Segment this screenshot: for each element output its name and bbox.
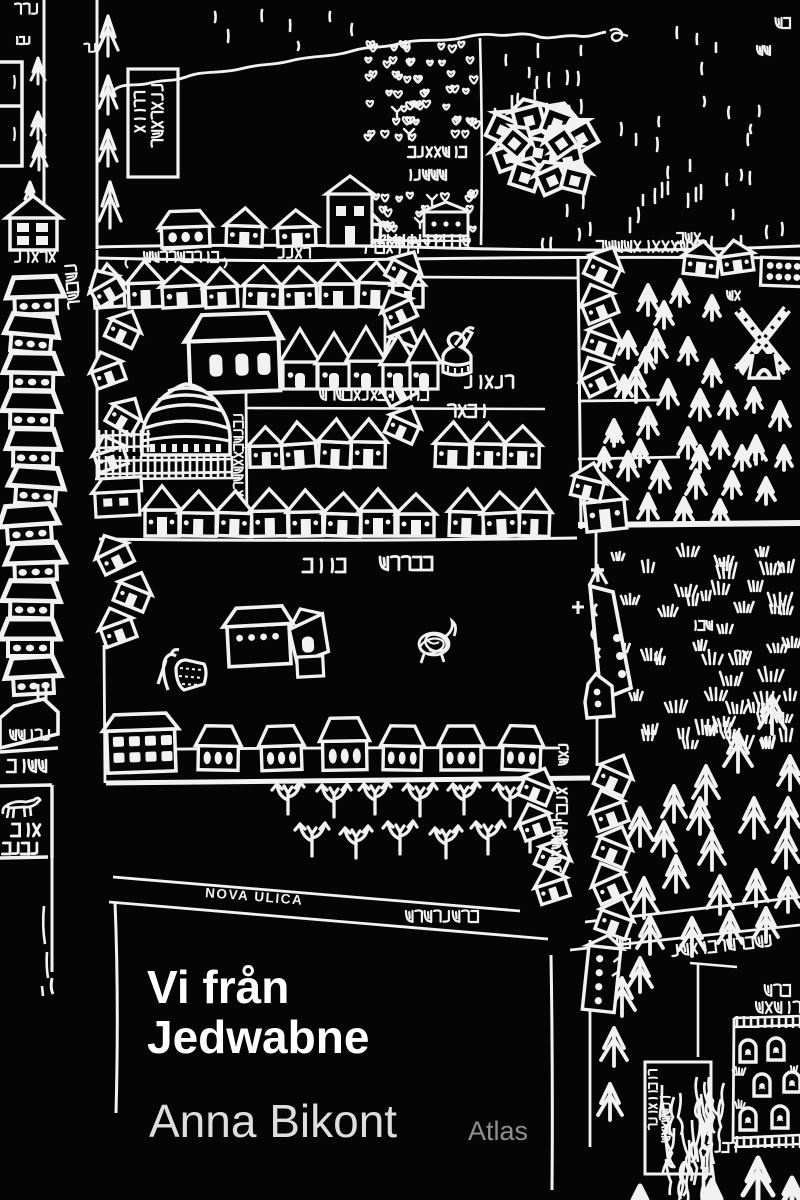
- svg-text:Atlas: Atlas: [468, 1116, 528, 1146]
- svg-text:Anna Bikont: Anna Bikont: [149, 1095, 397, 1147]
- svg-text:Vi från: Vi från: [147, 961, 289, 1013]
- svg-text:Jedwabne: Jedwabne: [147, 1011, 369, 1063]
